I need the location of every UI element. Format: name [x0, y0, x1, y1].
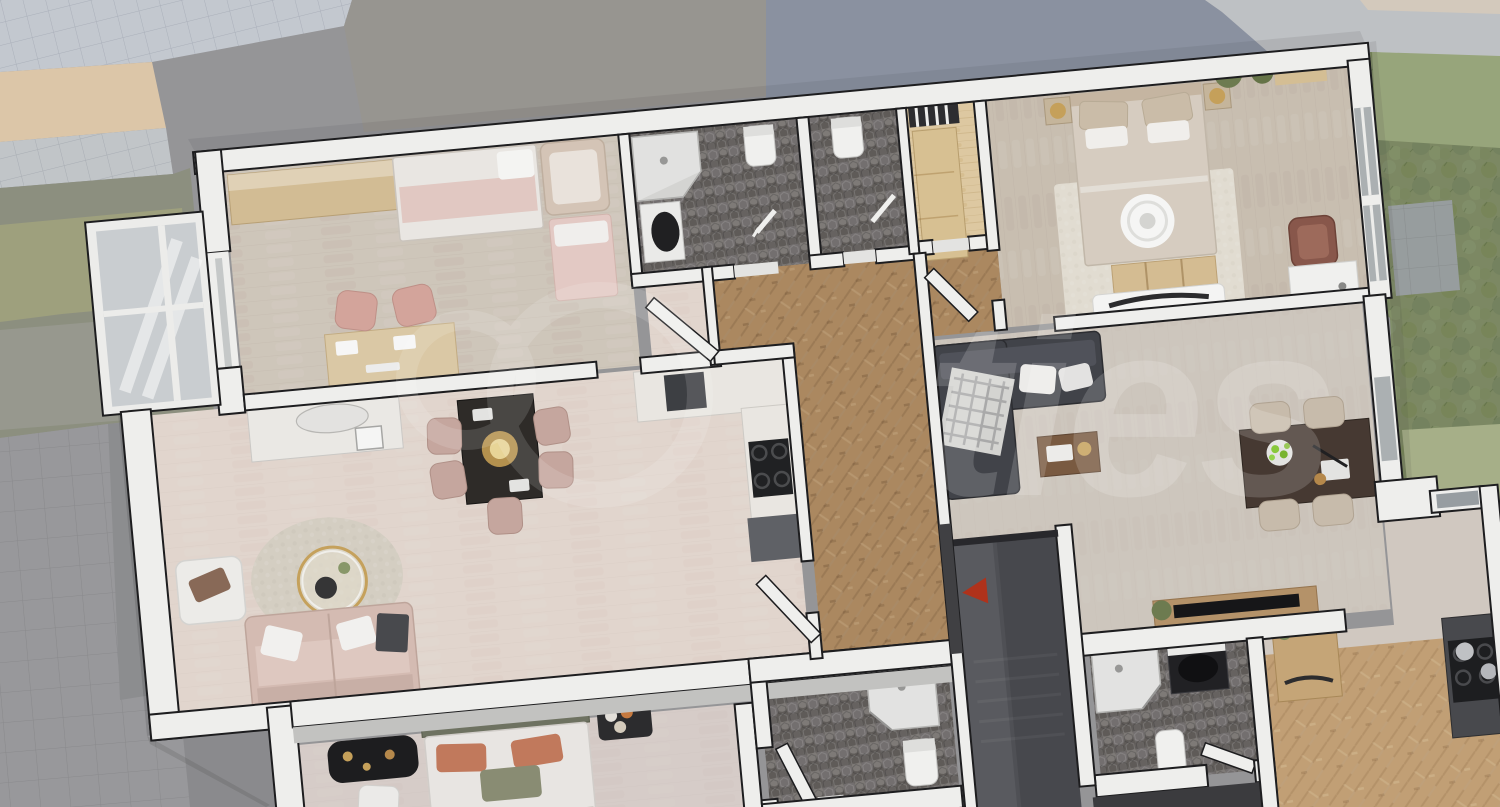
svg-text:ties: ties	[925, 269, 1332, 548]
